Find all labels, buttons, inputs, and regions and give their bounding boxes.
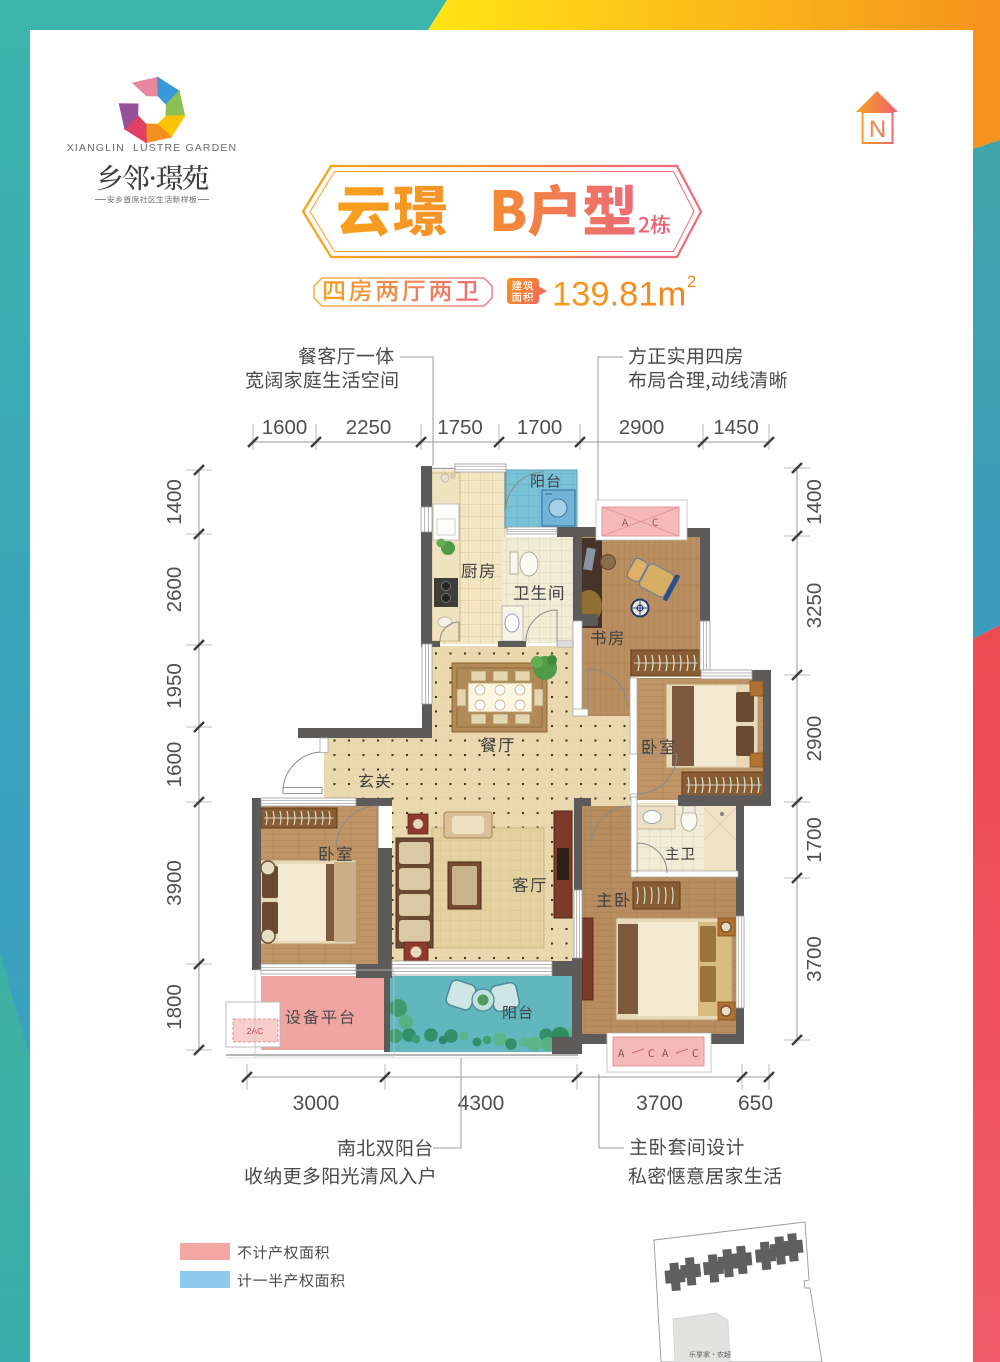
svg-text:2600: 2600	[163, 567, 186, 613]
svg-text:4300: 4300	[458, 1092, 505, 1115]
svg-text:1450: 1450	[713, 416, 759, 439]
svg-text:3250: 3250	[803, 583, 826, 629]
svg-text:3900: 3900	[163, 860, 186, 906]
svg-text:3700: 3700	[636, 1092, 683, 1115]
svg-text:1750: 1750	[437, 416, 483, 439]
svg-text:1700: 1700	[803, 817, 826, 863]
svg-text:N: N	[869, 116, 886, 143]
svg-text:650: 650	[738, 1092, 773, 1115]
svg-text:2900: 2900	[803, 716, 826, 762]
svg-text:1600: 1600	[262, 416, 308, 439]
svg-text:1400: 1400	[803, 479, 826, 525]
svg-text:1400: 1400	[163, 479, 186, 525]
svg-text:XIANGLIN LUSTRE GARDEN: XIANGLIN LUSTRE GARDEN	[67, 142, 238, 154]
svg-text:3000: 3000	[293, 1092, 340, 1115]
svg-text:1600: 1600	[163, 742, 186, 788]
svg-text:3700: 3700	[803, 936, 826, 982]
svg-text:2: 2	[687, 273, 696, 291]
svg-text:1800: 1800	[163, 984, 186, 1030]
svg-text:1950: 1950	[163, 663, 186, 709]
svg-text:139.81m: 139.81m	[552, 276, 686, 314]
svg-text:1700: 1700	[517, 416, 563, 439]
svg-text:2250: 2250	[346, 416, 392, 439]
svg-text:2900: 2900	[619, 416, 665, 439]
